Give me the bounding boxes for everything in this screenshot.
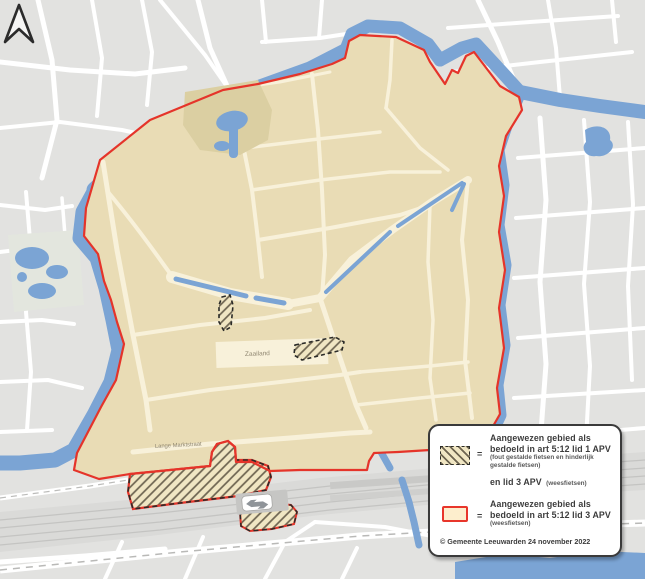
park-west bbox=[8, 230, 84, 312]
equals-sign: = bbox=[477, 449, 485, 459]
legend-line: bedoeld in art 5:12 lid 3 APV bbox=[490, 510, 612, 521]
legend-note: gestalde fietsen) bbox=[490, 462, 612, 470]
legend-line: Aangewezen gebied als bbox=[490, 499, 612, 510]
legend-line: Aangewezen gebied als bbox=[490, 433, 612, 444]
map-canvas: Zaailand Lange Marktstraat = Aangewezen … bbox=[0, 0, 645, 579]
north-arrow-icon bbox=[0, 0, 38, 46]
legend-note: (weesfietsen) bbox=[546, 480, 587, 487]
legend-line: en lid 3 APV bbox=[490, 477, 542, 487]
legend-line: bedoeld in art 5:12 lid 1 APV bbox=[490, 444, 612, 455]
hatched-area-centre-1 bbox=[219, 295, 233, 331]
legend-note: (fout gestalde fietsen en hinderlijk bbox=[490, 454, 612, 462]
legend-item-lid3: = Aangewezen gebied als bedoeld in art 5… bbox=[438, 499, 612, 528]
legend: = Aangewezen gebied als bedoeld in art 5… bbox=[428, 424, 622, 557]
equals-sign: = bbox=[477, 511, 485, 521]
legend-swatch-hatched bbox=[440, 446, 470, 465]
label-zaailand: Zaailand bbox=[245, 350, 271, 358]
legend-swatch-red-outline bbox=[442, 506, 468, 522]
legend-item-lid1: = Aangewezen gebied als bedoeld in art 5… bbox=[438, 433, 612, 490]
copyright-text: © Gemeente Leeuwarden 24 november 2022 bbox=[440, 537, 612, 546]
legend-note: (weesfietsen) bbox=[490, 520, 612, 528]
